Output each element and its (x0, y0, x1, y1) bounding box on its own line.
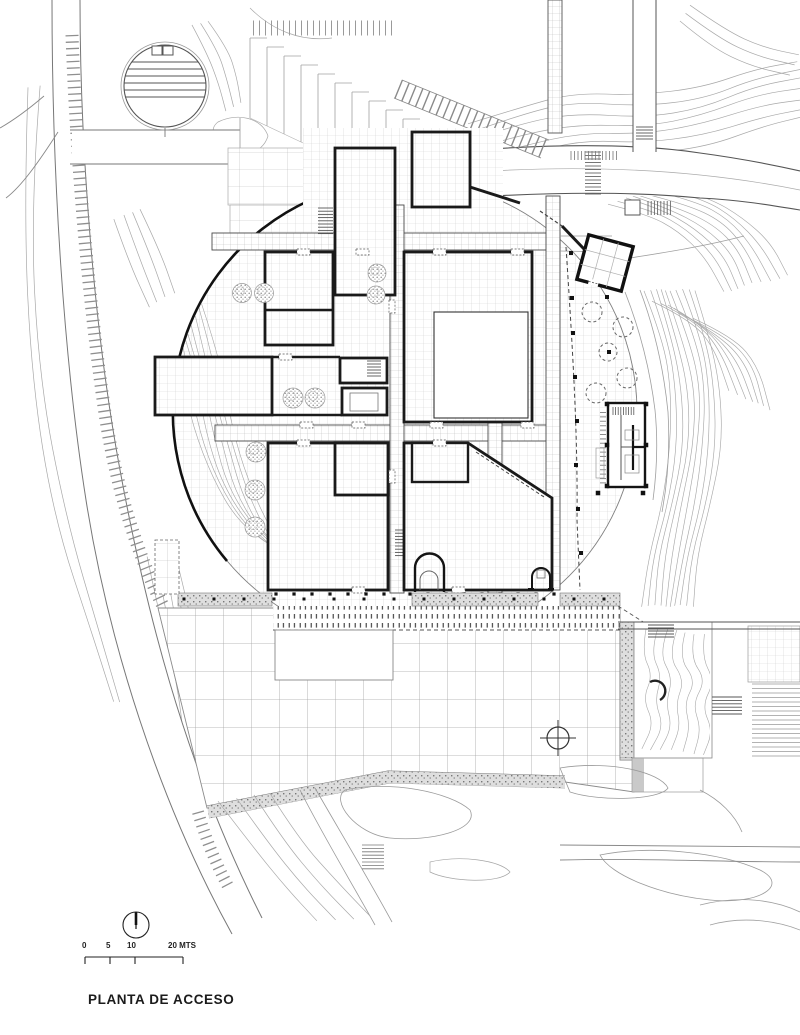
scale-label-10: 10 (127, 941, 136, 950)
drawing-sheet: PLANTA DE ACCESO 0 5 10 20 MTS (0, 0, 800, 1035)
scale-label-0: 0 (82, 941, 86, 950)
plan-title: PLANTA DE ACCESO (88, 992, 234, 1007)
water-tank (118, 42, 212, 137)
scale-label-5: 5 (106, 941, 110, 950)
legend-symbols (85, 912, 183, 964)
scale-label-20: 20 MTS (168, 941, 196, 950)
site-plan-drawing (0, 0, 800, 1035)
south-esplanade (155, 540, 800, 930)
